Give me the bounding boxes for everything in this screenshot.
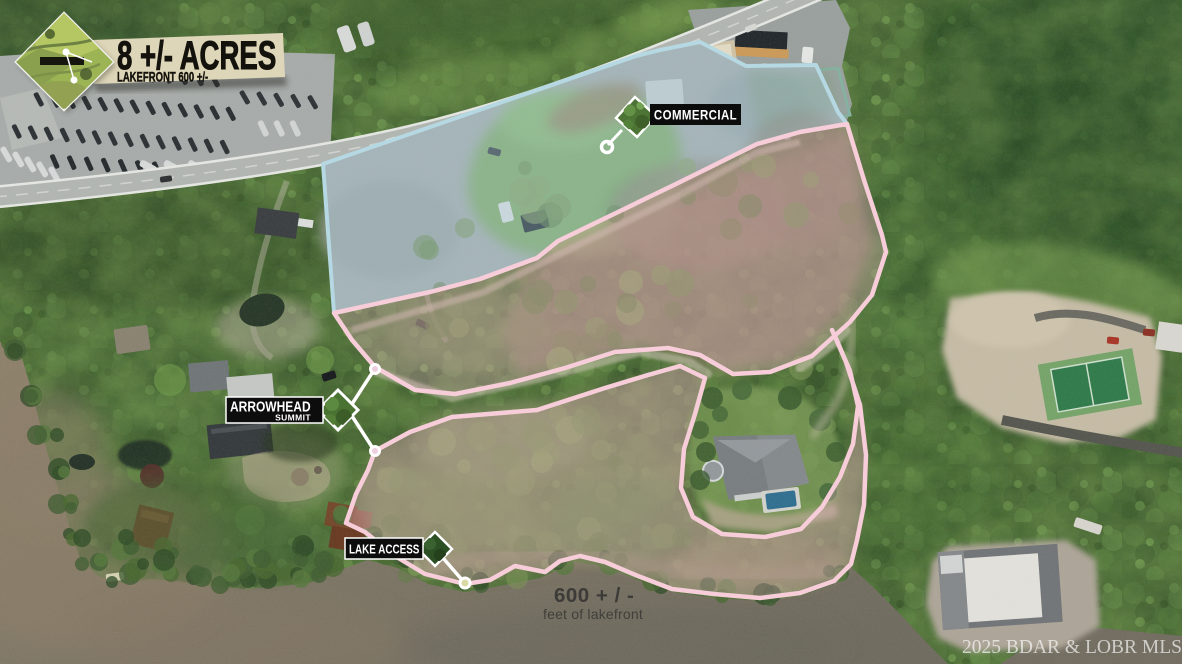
svg-text:2025 BDAR & LOBR MLS: 2025 BDAR & LOBR MLS — [962, 637, 1182, 658]
svg-text:600 + / -: 600 + / - — [554, 584, 634, 607]
svg-text:SUMMIT: SUMMIT — [275, 413, 311, 423]
svg-text:LAKEFRONT 600 +/-: LAKEFRONT 600 +/- — [117, 69, 208, 85]
svg-text:feet of lakefront: feet of lakefront — [543, 606, 643, 622]
svg-text:COMMERCIAL: COMMERCIAL — [654, 106, 737, 122]
svg-text:LAKE ACCESS: LAKE ACCESS — [349, 543, 420, 557]
